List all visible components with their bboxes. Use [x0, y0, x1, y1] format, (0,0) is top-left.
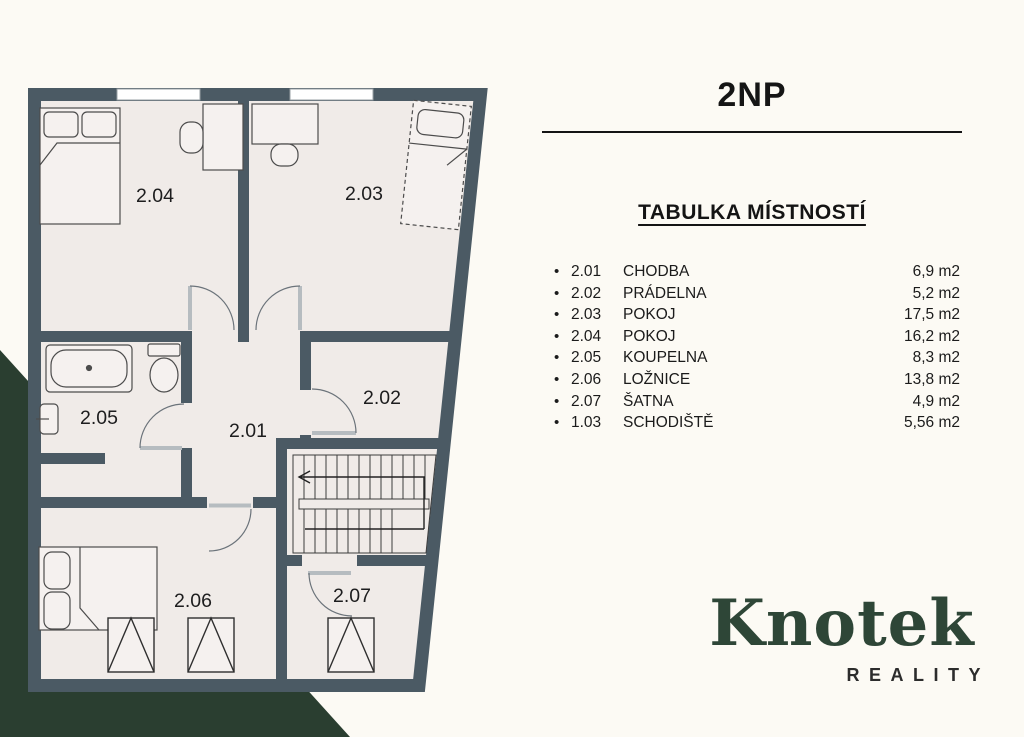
- bullet-icon: [554, 261, 571, 283]
- table-row: 1.03 SCHODIŠTĚ 5,56 m2: [554, 412, 960, 434]
- room-number: 2.03: [571, 304, 623, 326]
- room-number: 2.04: [571, 326, 623, 348]
- pillow-icon: [44, 552, 70, 589]
- window-icon: [117, 89, 200, 100]
- room-name: KOUPELNA: [623, 347, 913, 369]
- room-number: 2.01: [571, 261, 623, 283]
- brand-logo: Knotek REALITY: [692, 590, 992, 686]
- room-label: 2.06: [174, 590, 212, 612]
- table-row: 2.01 CHODBA 6,9 m2: [554, 261, 960, 283]
- roof-window-icon: [108, 618, 154, 672]
- desk-icon: [203, 104, 243, 170]
- table-row: 2.05 KOUPELNA 8,3 m2: [554, 347, 960, 369]
- room-number: 2.07: [571, 391, 623, 413]
- brand-name: Knotek: [692, 590, 992, 657]
- room-area: 5,56 m2: [904, 412, 960, 434]
- room-name: PRÁDELNA: [623, 283, 913, 305]
- table-row: 2.07 ŠATNA 4,9 m2: [554, 391, 960, 413]
- stairs-icon: [293, 455, 436, 553]
- room-area: 4,9 m2: [913, 391, 960, 413]
- page-title: 2NP: [540, 76, 964, 115]
- bullet-icon: [554, 326, 571, 348]
- toilet-icon: [150, 358, 178, 392]
- room-name: POKOJ: [623, 326, 904, 348]
- room-label: 2.01: [229, 420, 267, 442]
- room-number: 2.02: [571, 283, 623, 305]
- room-number: 2.05: [571, 347, 623, 369]
- pillow-icon: [416, 109, 464, 139]
- table-row: 2.02 PRÁDELNA 5,2 m2: [554, 283, 960, 305]
- drain-icon: [87, 366, 92, 371]
- desk-icon: [252, 104, 318, 144]
- room-label: 2.07: [333, 585, 371, 607]
- room-table: 2.01 CHODBA 6,9 m2 2.02 PRÁDELNA 5,2 m2 …: [540, 261, 964, 434]
- floorplan: 2.04 2.03 2.05 2.01 2.02 2.06 2.07: [0, 0, 520, 737]
- bullet-icon: [554, 412, 571, 434]
- toilet-tank-icon: [148, 344, 180, 356]
- pillow-icon: [82, 112, 116, 137]
- table-row: 2.06 LOŽNICE 13,8 m2: [554, 369, 960, 391]
- room-area: 16,2 m2: [904, 326, 960, 348]
- room-name: CHODBA: [623, 261, 913, 283]
- chair-icon: [271, 144, 298, 166]
- room-area: 5,2 m2: [913, 283, 960, 305]
- bullet-icon: [554, 283, 571, 305]
- room-area: 8,3 m2: [913, 347, 960, 369]
- room-number: 2.06: [571, 369, 623, 391]
- room-area: 13,8 m2: [904, 369, 960, 391]
- roof-window-icon: [188, 618, 234, 672]
- room-label: 2.03: [345, 183, 383, 205]
- chair-icon: [180, 122, 203, 153]
- title-divider: [542, 131, 962, 133]
- bullet-icon: [554, 391, 571, 413]
- pillow-icon: [44, 592, 70, 629]
- room-name: POKOJ: [623, 304, 904, 326]
- room-area: 6,9 m2: [913, 261, 960, 283]
- bullet-icon: [554, 347, 571, 369]
- bullet-icon: [554, 369, 571, 391]
- roof-window-icon: [328, 618, 374, 672]
- table-row: 2.03 POKOJ 17,5 m2: [554, 304, 960, 326]
- bullet-icon: [554, 304, 571, 326]
- room-area: 17,5 m2: [904, 304, 960, 326]
- room-table-heading: TABULKA MÍSTNOSTÍ: [540, 201, 964, 225]
- room-name: SCHODIŠTĚ: [623, 412, 904, 434]
- pillow-icon: [44, 112, 78, 137]
- window-icon: [290, 89, 373, 100]
- room-name: LOŽNICE: [623, 369, 904, 391]
- room-number: 1.03: [571, 412, 623, 434]
- table-row: 2.04 POKOJ 16,2 m2: [554, 326, 960, 348]
- room-label: 2.04: [136, 185, 174, 207]
- room-label: 2.05: [80, 407, 118, 429]
- room-name: ŠATNA: [623, 391, 913, 413]
- room-label: 2.02: [363, 387, 401, 409]
- info-panel: 2NP TABULKA MÍSTNOSTÍ 2.01 CHODBA 6,9 m2…: [540, 76, 964, 434]
- brand-subtitle: REALITY: [692, 665, 992, 686]
